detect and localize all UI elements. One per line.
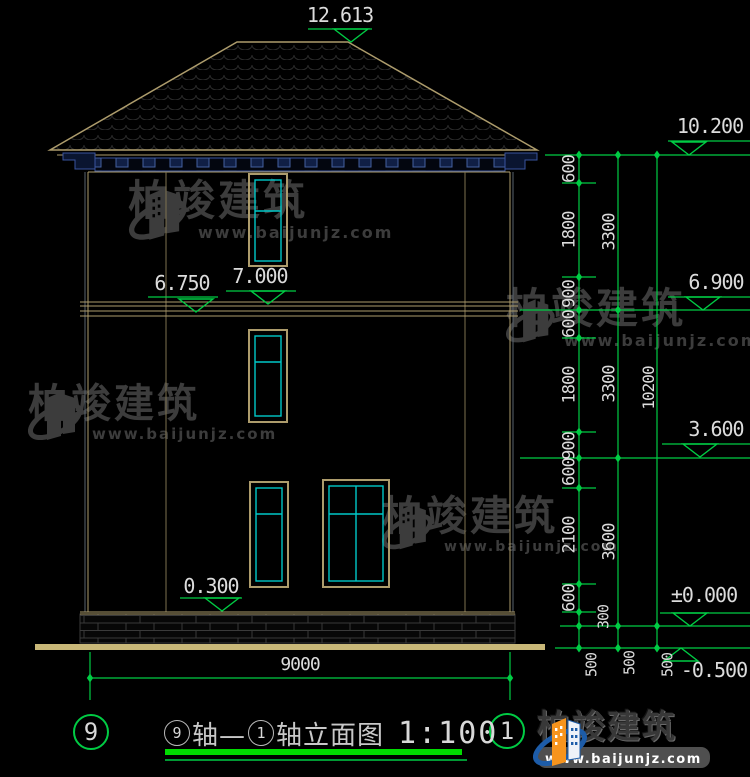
wall-corner-lines: [166, 172, 465, 612]
dim-c1-500: 500: [585, 653, 600, 677]
eave-band: [63, 153, 537, 171]
window-floor2: [249, 330, 287, 422]
window-floor3: [249, 174, 287, 266]
title-underline-thick: [165, 749, 462, 755]
elev-3-600: 3.600: [688, 419, 743, 439]
dim-c1-600a: 600: [562, 155, 579, 183]
dim-c1-600b: 600: [562, 310, 579, 338]
title-underline-thin: [165, 759, 467, 761]
elev-0-300: 0.300: [183, 576, 238, 596]
elev-7-000: 7.000: [232, 266, 287, 286]
elev-plus-0-000: ±0.000: [671, 585, 737, 605]
dim-c1-1800b: 1800: [562, 367, 579, 404]
axis-bubble-9: 9: [73, 714, 109, 750]
elev-10-200: 10.200: [677, 116, 743, 136]
axis-bubble-9-label: 9: [84, 718, 98, 746]
dim-c2-500: 500: [623, 651, 638, 675]
dim-c3-500: 500: [661, 653, 676, 677]
brand-logo-icon: [533, 710, 593, 770]
dim-c1-1800a: 1800: [562, 212, 579, 249]
title-axis-end-bubble: 1: [248, 720, 274, 746]
eave-corbel-right: [505, 153, 537, 169]
walls: [80, 172, 518, 612]
title-suffix: 轴立面图: [276, 715, 384, 752]
hip-roof: [50, 42, 537, 155]
dim-c3-10200: 10200: [641, 366, 657, 409]
drawing-title: 9 轴— 1 轴立面图 1:100: [164, 714, 498, 752]
dim-c2-3300a: 3300: [602, 214, 619, 251]
title-connector: 轴—: [192, 715, 246, 752]
ground-line: [35, 644, 545, 650]
window-floor1-narrow: [250, 482, 288, 587]
floor-belt-course: [80, 302, 518, 316]
elev-6-900: 6.900: [688, 272, 743, 292]
dim-c1-900b: 900: [562, 432, 579, 460]
elev-minus-0-500: -0.500: [681, 660, 747, 680]
axis-bubble-1-label: 1: [500, 717, 514, 745]
dim-c1-600d: 600: [562, 584, 579, 612]
dim-c2-3600: 3600: [602, 524, 619, 561]
dim-c1-600c: 600: [562, 458, 579, 486]
plinth: [35, 612, 545, 650]
cad-elevation-drawing: 柏竣建筑 www.baijunjz.com 柏竣建筑 www.baijunjz.…: [0, 0, 750, 777]
title-scale: 1:100: [398, 716, 498, 751]
dim-c2-3300b: 3300: [602, 366, 619, 403]
window-floor1-wide: [323, 480, 389, 587]
elev-6-750: 6.750: [154, 273, 209, 293]
brand-logo: 柏竣建筑 www.baijunjz.com: [533, 710, 710, 768]
eave-corbel-left: [63, 153, 95, 169]
title-axis-start-bubble: 9: [164, 720, 190, 746]
dim-c1-300: 300: [597, 605, 612, 629]
dim-total-width: 9000: [280, 656, 319, 674]
dim-c1-900a: 900: [562, 280, 579, 308]
elev-12-613: 12.613: [307, 5, 373, 25]
dim-c1-2100: 2100: [562, 517, 579, 554]
